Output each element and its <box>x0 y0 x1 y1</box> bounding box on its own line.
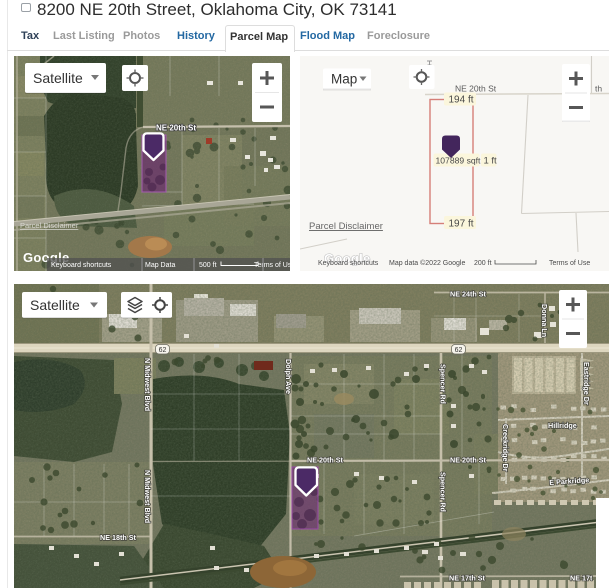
svg-text:Map: Map <box>331 72 357 87</box>
svg-text:NE 20th St: NE 20th St <box>156 124 196 133</box>
svg-text:62: 62 <box>455 347 463 354</box>
svg-text:Satellite: Satellite <box>33 70 83 86</box>
svg-text:500 ft: 500 ft <box>199 262 217 269</box>
svg-text:62: 62 <box>159 347 167 354</box>
svg-text:NE 17th St: NE 17th St <box>449 574 486 583</box>
svg-text:Terms of Use: Terms of Use <box>254 262 290 269</box>
svg-text:Parcel Disclaimer: Parcel Disclaimer <box>20 221 79 230</box>
svg-text:NE 20th St: NE 20th St <box>450 456 487 465</box>
svg-text:Hillridge: Hillridge <box>548 421 577 430</box>
svg-text:Map data ©2022 Google: Map data ©2022 Google <box>389 259 465 267</box>
svg-text:Keyboard shortcuts: Keyboard shortcuts <box>51 262 112 269</box>
svg-text:Satellite: Satellite <box>30 297 80 313</box>
svg-text:Map Data: Map Data <box>145 262 175 269</box>
svg-text:Spencer Rd: Spencer Rd <box>439 364 448 404</box>
svg-text:107889 sqft: 107889 sqft <box>436 156 482 166</box>
svg-text:Parcel Disclaimer: Parcel Disclaimer <box>309 221 383 232</box>
svg-text:N Midwest Blvd: N Midwest Blvd <box>143 358 152 411</box>
svg-text:N Midwest Blvd: N Midwest Blvd <box>143 470 152 523</box>
svg-text:1 ft: 1 ft <box>484 156 498 167</box>
svg-text:194 ft: 194 ft <box>449 95 474 106</box>
svg-text:Terms of Use: Terms of Use <box>549 260 590 267</box>
svg-text:NE 20th St: NE 20th St <box>455 84 497 94</box>
svg-text:200 ft: 200 ft <box>474 260 492 267</box>
svg-text:Eastridge Dr: Eastridge Dr <box>582 362 591 405</box>
svg-text:th: th <box>595 84 602 94</box>
svg-text:197 ft: 197 ft <box>449 219 474 230</box>
svg-text:NE 18th St: NE 18th St <box>100 533 137 542</box>
svg-text:Creekridge Dr: Creekridge Dr <box>501 424 510 472</box>
svg-text:NE 20th St: NE 20th St <box>307 456 344 465</box>
svg-text:Dolph Ave: Dolph Ave <box>284 359 293 394</box>
svg-text:Spencer Rd: Spencer Rd <box>439 472 448 512</box>
svg-text:NE 17t: NE 17t <box>570 574 593 583</box>
svg-text:Keyboard shortcuts: Keyboard shortcuts <box>318 260 379 267</box>
svg-text:NE 24th St: NE 24th St <box>450 290 487 299</box>
svg-text:Donna Ln: Donna Ln <box>540 304 549 337</box>
